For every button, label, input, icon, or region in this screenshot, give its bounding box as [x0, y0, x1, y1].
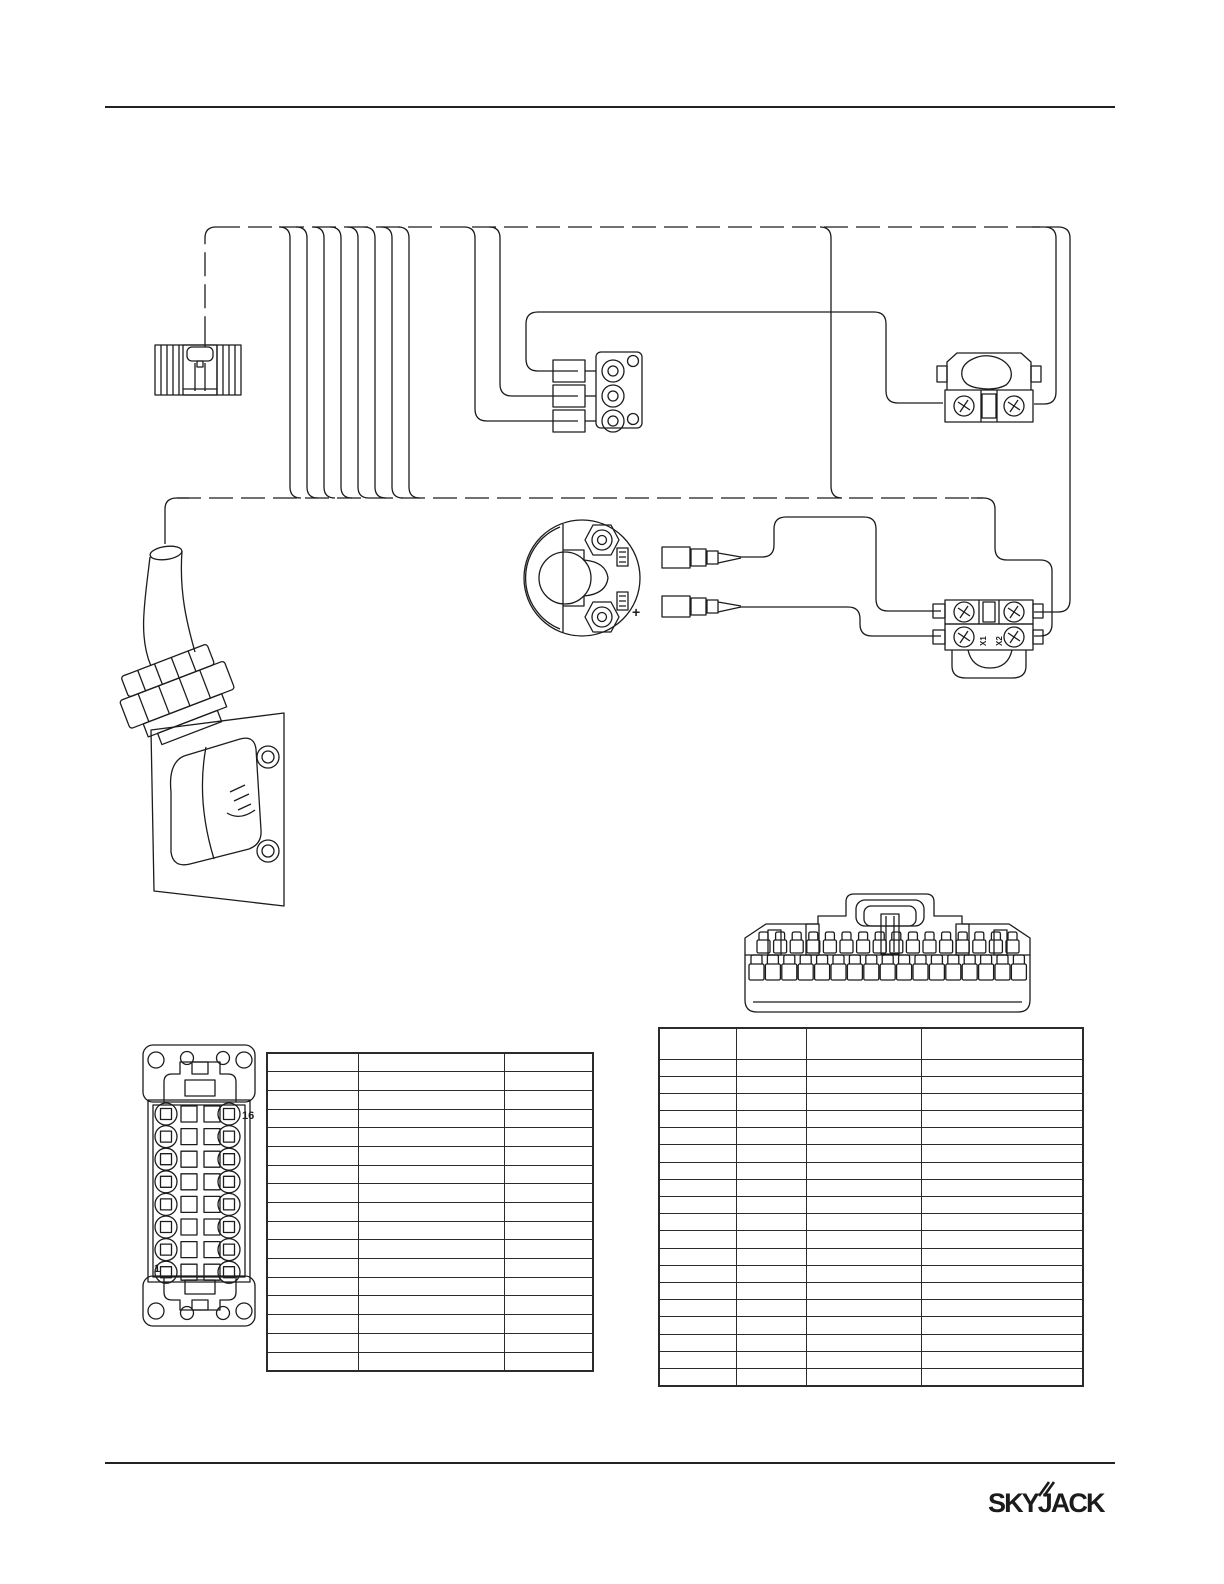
table-header-row	[659, 1028, 1083, 1059]
cable-gland	[112, 640, 245, 753]
table-row	[659, 1076, 1083, 1093]
terminal-label-x2: X2	[995, 636, 1004, 646]
horn: +	[524, 520, 640, 636]
table-row	[659, 1197, 1083, 1214]
table-row	[267, 1128, 593, 1147]
table-row	[659, 1282, 1083, 1299]
bottom-rule	[105, 1462, 1115, 1464]
control-box	[112, 544, 284, 906]
spade-terminal-upper	[662, 517, 941, 611]
table-row	[659, 1111, 1083, 1128]
cable-end	[149, 544, 182, 561]
table-row	[267, 1277, 593, 1296]
table-row	[267, 1072, 593, 1091]
pin-row-bottom	[749, 955, 1026, 980]
table-row	[267, 1352, 593, 1371]
terminal-label-x1: X1	[979, 636, 988, 646]
table-row	[659, 1317, 1083, 1334]
table-row	[659, 1214, 1083, 1231]
spade-terminal-lower	[662, 596, 941, 636]
table-row	[267, 1184, 593, 1203]
pinout-table-right	[658, 1027, 1084, 1387]
brand-mark-icon	[227, 785, 255, 816]
table-row	[267, 1053, 593, 1072]
rect-connector-16pin: 16 1	[143, 1045, 255, 1326]
table-row	[267, 1240, 593, 1259]
toggle-switch-lower: X1 X2	[933, 600, 1043, 678]
table-row	[659, 1368, 1083, 1385]
rocker-switch[interactable]	[171, 738, 262, 865]
pin-row-top	[757, 932, 1019, 953]
fuse-block	[155, 336, 241, 395]
pin-grid	[155, 1103, 240, 1283]
table-row	[267, 1090, 593, 1109]
table-row	[659, 1265, 1083, 1282]
table-row	[659, 1334, 1083, 1351]
table-row	[267, 1333, 593, 1352]
table-row	[267, 1165, 593, 1184]
table-row	[659, 1231, 1083, 1248]
lower-bus-wire	[165, 498, 1052, 636]
table-row	[659, 1093, 1083, 1110]
pin-16-label: 16	[242, 1110, 254, 1122]
pinout-table-left	[266, 1052, 594, 1372]
table-row	[659, 1145, 1083, 1162]
toggle-switch-upper	[937, 353, 1041, 422]
table-row	[267, 1109, 593, 1128]
horn-polarity-label: +	[632, 604, 640, 620]
table-row	[659, 1248, 1083, 1265]
table-row	[659, 1300, 1083, 1317]
cable	[144, 557, 151, 666]
table-row	[267, 1259, 593, 1278]
pin-1-label: 1	[154, 1263, 160, 1275]
table-row	[659, 1059, 1083, 1076]
table-row	[659, 1162, 1083, 1179]
top-bus-wire	[205, 227, 1070, 612]
table-row	[659, 1351, 1083, 1368]
wire-cluster	[279, 227, 842, 498]
table-row	[267, 1221, 593, 1240]
multi-pin-connector	[745, 894, 1030, 1012]
flasher-unit	[553, 352, 642, 432]
table-row	[267, 1203, 593, 1222]
table-row	[267, 1296, 593, 1315]
table-row	[267, 1146, 593, 1165]
manual-page: + X1 X2	[0, 0, 1224, 1584]
table-row	[659, 1128, 1083, 1145]
table-row	[267, 1315, 593, 1334]
brand-logo: SKYJACK	[988, 1480, 1123, 1522]
table-row	[659, 1179, 1083, 1196]
branch-wires	[464, 227, 943, 421]
